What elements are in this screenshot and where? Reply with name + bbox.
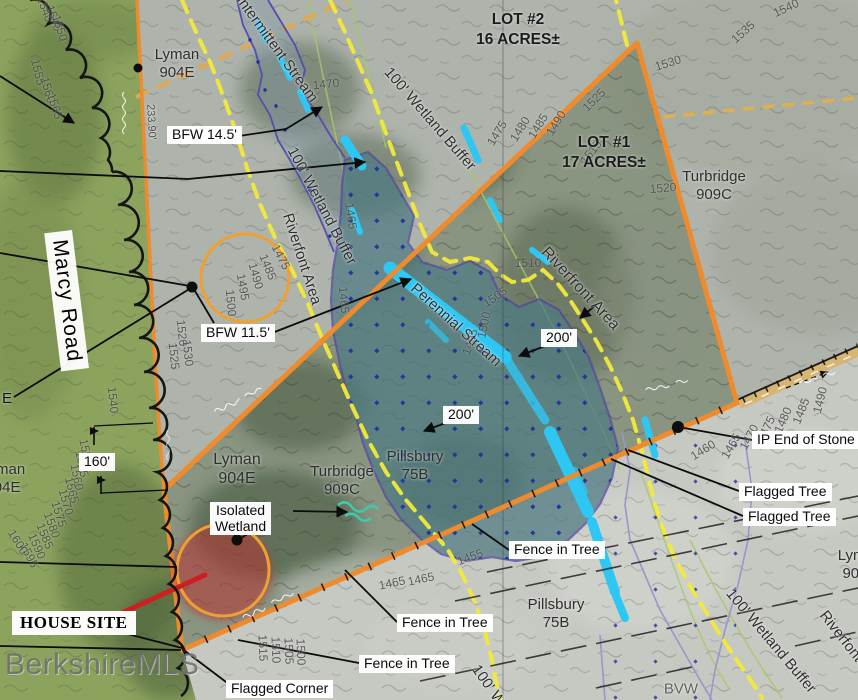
survey-map: 1540154515501555156015651540155015551560…	[0, 0, 858, 700]
parcel-name: Lyman	[838, 547, 858, 564]
contour-value: 1465	[406, 569, 435, 588]
contour-label: 1465	[342, 202, 360, 230]
callout-label: Fence in Tree	[359, 655, 455, 673]
lot-name: LOT #1	[578, 134, 631, 151]
map-annotation: Riverfront Area	[537, 244, 623, 334]
lot-area: 17 ACRES±	[562, 154, 646, 171]
callout-label: IP End of Stone	[752, 431, 858, 449]
labels-layer: 1540154515501555156015651540155015551560…	[0, 0, 858, 700]
contour-value: 1455	[455, 546, 485, 568]
contour-label: 1500	[294, 638, 309, 665]
contour-value: 1460	[688, 437, 718, 463]
annotation-text: 100' Wetland	[468, 662, 532, 700]
contour-value: 1475	[484, 118, 510, 148]
callout-text: Isolated Wetland	[215, 502, 266, 534]
parcel-name: Lyman	[0, 461, 25, 478]
contour-value: 1535	[728, 18, 757, 46]
parcel-label: Lyman904E	[213, 450, 260, 488]
callout-label: 200'	[541, 329, 577, 347]
parcel-id: 904E	[0, 479, 21, 496]
contour-label: 1520	[649, 180, 677, 196]
contour-label: 1460	[688, 437, 718, 463]
contour-value: 1505	[480, 284, 510, 311]
contour-value: 1490	[810, 385, 830, 414]
map-annotation: Intermittent Stream	[233, 0, 322, 106]
contour-value: 1465	[336, 286, 352, 314]
parcel-id: 75B	[543, 614, 570, 631]
callout-text: IP End of Stone	[757, 431, 855, 447]
callout-label: BFW 14.5'	[167, 126, 242, 144]
map-annotation: Riverfont Area	[816, 607, 858, 692]
contour-value: 1530	[653, 52, 683, 74]
contour-label: 1535	[728, 18, 757, 46]
contour-label: 1525	[580, 86, 609, 115]
contour-value: 1565	[44, 91, 66, 121]
road-name-label: Marcy Road	[44, 230, 89, 372]
contour-label: 1490	[810, 385, 830, 414]
callout-label: BFW 11.5'	[201, 324, 275, 342]
map-annotation: 233.90'	[144, 104, 158, 140]
callout-text: Flagged Corner	[231, 680, 328, 696]
parcel-label: Lyman904E	[155, 46, 199, 82]
contour-label: 1475	[484, 118, 510, 148]
parcel-name: Turbridge	[682, 168, 746, 185]
parcel-label: Lyman904E	[838, 547, 858, 583]
parcel-name: Pillsbury	[528, 596, 585, 613]
callout-text: Fence in Tree	[514, 541, 600, 557]
parcel-id: 904E	[218, 470, 255, 487]
contour-value: 1510	[515, 256, 542, 270]
contour-value: 1520	[649, 180, 677, 196]
callout-text: 200'	[546, 329, 572, 345]
lot-label: LOT #117 ACRES±	[562, 133, 646, 173]
parcel-label: Turbridge909C	[310, 463, 374, 499]
contour-value: 1465	[342, 202, 360, 230]
callout-text: Flagged Tree	[744, 483, 827, 499]
contour-label: 1530	[653, 52, 683, 74]
annotation-text: 233.90'	[144, 104, 158, 140]
callout-text: Flagged Tree	[748, 508, 831, 524]
callout-label: 200'	[443, 406, 479, 424]
contour-label: 1540	[771, 0, 801, 20]
contour-label: 1465	[406, 569, 435, 588]
parcel-name: Lyman	[155, 46, 199, 63]
contour-value: 1550	[49, 13, 71, 43]
parcel-name: Pillsbury	[387, 448, 444, 465]
contour-value: 1525	[580, 86, 609, 115]
contour-label: 1550	[49, 13, 71, 43]
parcel-label: Pillsbury75B	[387, 448, 444, 484]
annotation-text: BVW	[664, 681, 698, 698]
parcel-id: 904E	[842, 565, 858, 582]
parcel-id: 904E	[159, 64, 194, 81]
edge-label-e: E	[2, 390, 12, 407]
parcel-label: Lyman904E	[0, 461, 25, 497]
contour-label: 1465	[336, 286, 352, 314]
parcel-id: 909C	[324, 481, 360, 498]
callout-label: Isolated Wetland	[210, 502, 271, 535]
callout-label: Flagged Tree	[739, 483, 832, 501]
lot-name: LOT #2	[492, 11, 545, 28]
contour-label: 1540	[105, 386, 122, 414]
parcel-name: Turbridge	[310, 463, 374, 480]
contour-label: 1565	[44, 91, 66, 121]
annotation-text: Riverfont Area	[816, 607, 858, 692]
callout-text: 160'	[84, 453, 110, 469]
contour-value: 1530	[180, 339, 197, 367]
annotation-text: 100' Wetland Buffer	[381, 64, 480, 174]
house-site-label: HOUSE SITE	[12, 611, 136, 635]
callout-text: 200'	[448, 406, 474, 422]
annotation-text: Riverfront Area	[538, 244, 623, 334]
contour-label: 1530	[180, 339, 197, 367]
parcel-label: Turbridge909C	[682, 168, 746, 204]
callout-text: Fence in Tree	[402, 614, 488, 630]
callout-text: Fence in Tree	[364, 655, 450, 671]
parcel-id: 75B	[402, 466, 429, 483]
contour-value: 1465	[377, 573, 406, 592]
contour-label: 1510	[515, 256, 542, 270]
contour-label: 1465	[377, 573, 406, 592]
contour-label: 1505	[480, 284, 510, 311]
contour-value: 1500	[294, 638, 309, 665]
annotation-text: 100' Wetland Buffer	[722, 585, 819, 696]
lot-label: LOT #216 ACRES±	[476, 10, 560, 50]
contour-value: 1540	[771, 0, 801, 20]
callout-text: BFW 11.5'	[206, 324, 270, 340]
parcel-name: Lyman	[213, 451, 260, 468]
map-annotation: 100' Wetland Buffer	[381, 64, 480, 174]
map-annotation: BVW	[664, 681, 698, 698]
map-annotation: 100' Wetland	[468, 662, 532, 700]
callout-label: 160'	[79, 453, 115, 471]
callout-text: BFW 14.5'	[172, 126, 237, 142]
lot-area: 16 ACRES±	[476, 31, 560, 48]
map-annotation: 100' Wetland Buffer	[722, 585, 819, 696]
callout-label: Flagged Tree	[743, 508, 836, 526]
contour-value: 1540	[105, 386, 122, 414]
callout-label: Fence in Tree	[397, 614, 493, 632]
parcel-label: Pillsbury75B	[528, 596, 585, 632]
parcel-id: 909C	[696, 186, 732, 203]
watermark: BerkshireMLS	[5, 648, 199, 682]
annotation-text: Intermittent Stream	[233, 0, 322, 106]
callout-label: Flagged Corner	[226, 680, 333, 698]
callout-label: Fence in Tree	[509, 541, 605, 559]
contour-label: 1455	[455, 546, 485, 568]
